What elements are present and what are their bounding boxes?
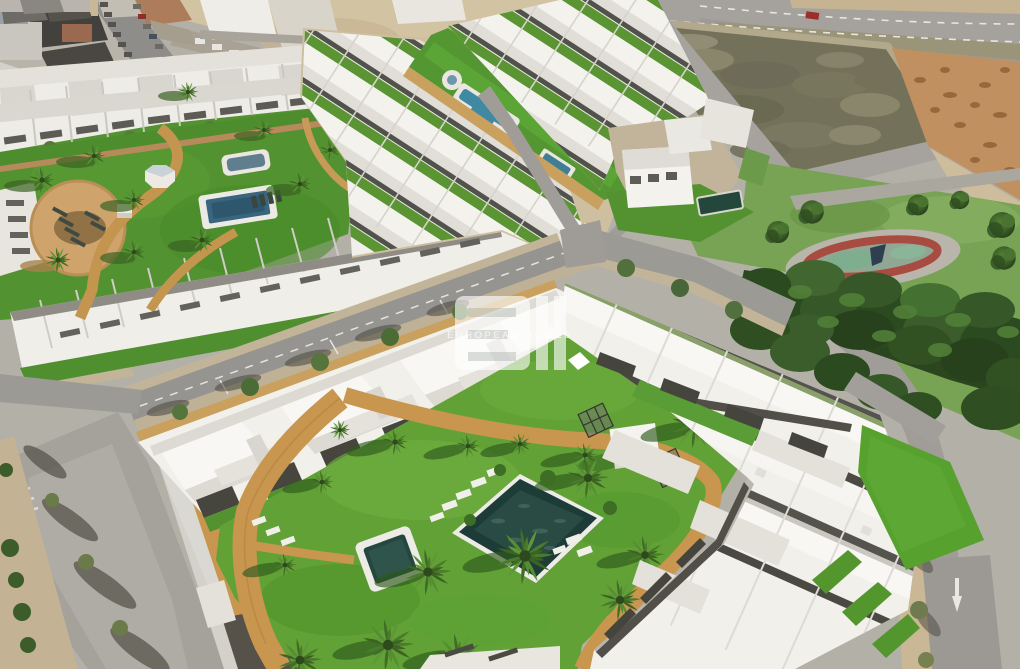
svg-text:EUROPEAN HOMES: EUROPEAN HOMES (447, 330, 573, 341)
